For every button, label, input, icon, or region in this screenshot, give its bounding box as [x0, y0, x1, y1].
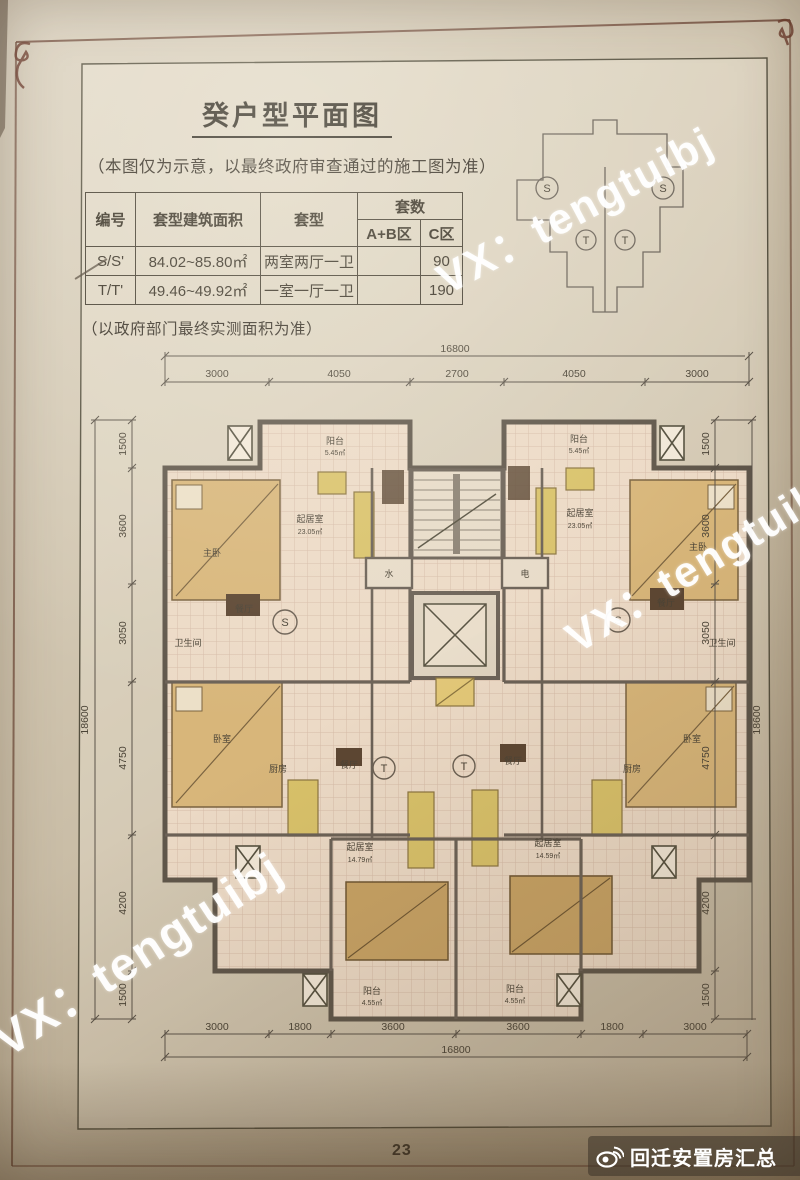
- dim: 4200: [117, 891, 129, 915]
- room-label-living: 起居室: [534, 837, 561, 848]
- room-label-living: 起居室: [566, 507, 593, 518]
- col-header-layout: 套型: [261, 193, 358, 247]
- unit-label-s: S: [281, 617, 288, 629]
- bed: [346, 882, 448, 960]
- room-label-bedroom: 卧室: [213, 733, 231, 744]
- dim: 4050: [562, 368, 586, 380]
- dim: 2700: [445, 368, 469, 380]
- unit-spec-table: 编号 套型建筑面积 套型 套数 A+B区 C区 S/S' 84.02~85.80…: [85, 192, 463, 305]
- dim: 1800: [600, 1021, 624, 1033]
- room-area: 4.55㎡: [505, 997, 526, 1005]
- electric-room-label: 电: [520, 568, 529, 579]
- dim: 4050: [327, 368, 351, 380]
- room-label-kitchen: 厨房: [269, 763, 287, 774]
- dim-left-total: 18600: [79, 705, 91, 734]
- col-header-area: 套型建筑面积: [136, 193, 261, 247]
- source-badge: 回迁安置房汇总: [588, 1136, 800, 1176]
- room-label-balcony: 阳台: [570, 433, 588, 444]
- cell-area: 49.46~49.92㎡: [136, 276, 261, 305]
- dim-top-total: 16800: [440, 343, 469, 355]
- dim: 3600: [381, 1021, 405, 1033]
- bed: [510, 876, 612, 954]
- bed: [626, 682, 736, 807]
- cell-id: T/T': [86, 276, 136, 305]
- measurement-note: （以政府部门最终实测面积为准）: [82, 317, 322, 339]
- room-label-bath: 卫生间: [174, 637, 201, 648]
- disclaimer-note: （本图仅为示意，以最终政府审查通过的施工图为准）: [88, 153, 496, 177]
- page-number: 23: [392, 1142, 412, 1160]
- dim: 1500: [700, 983, 712, 1007]
- room-area: 23.05㎡: [568, 522, 593, 530]
- dim: 3000: [205, 368, 229, 380]
- dim: 3050: [700, 621, 712, 645]
- room-label-bath: 卫生间: [708, 637, 735, 648]
- room-label-balcony: 阳台: [326, 435, 344, 446]
- dim: 3600: [506, 1021, 530, 1033]
- dim: 3000: [205, 1021, 229, 1033]
- dim: 3600: [117, 514, 129, 538]
- col-header-count: 套数: [358, 193, 463, 220]
- water-room-label: 水: [384, 568, 393, 579]
- cell-layout: 一室一厅一卫: [261, 276, 358, 305]
- weibo-icon: [596, 1144, 624, 1168]
- cell-count-ab: [358, 247, 421, 276]
- dim: 1800: [288, 1021, 312, 1033]
- room-label-master: 主卧: [203, 547, 221, 558]
- page-title: 癸户型平面图: [192, 94, 392, 138]
- room-area: 4.55㎡: [362, 999, 383, 1007]
- corner-flourish-icon: [778, 20, 792, 45]
- dim-bottom-total: 16800: [441, 1044, 470, 1056]
- room-area: 5.45㎡: [569, 447, 590, 455]
- cell-count-ab: [358, 276, 421, 305]
- unit-label-t: T: [461, 761, 468, 773]
- cell-layout: 两室两厅一卫: [261, 247, 358, 276]
- dim-right-total: 18600: [751, 705, 763, 734]
- room-label-balcony: 阳台: [363, 985, 381, 996]
- cell-id: S/S': [86, 247, 136, 276]
- dim: 1500: [700, 432, 712, 456]
- room-area: 5.45㎡: [325, 449, 346, 457]
- room-area: 14.59㎡: [536, 852, 561, 860]
- dim: 4200: [700, 891, 712, 915]
- col-header-count-ab: A+B区: [358, 220, 421, 247]
- room-label-bedroom: 卧室: [683, 733, 701, 744]
- bed: [172, 480, 280, 600]
- photographed-floorplan-page: 癸户型平面图 （本图仅为示意，以最终政府审查通过的施工图为准） 编号 套型建筑面…: [0, 0, 800, 1180]
- table-row: T/T' 49.46~49.92㎡ 一室一厅一卫 190: [86, 276, 463, 305]
- room-label-balcony: 阳台: [506, 983, 524, 994]
- cell-area: 84.02~85.80㎡: [136, 247, 261, 276]
- dim: 3000: [683, 1021, 707, 1033]
- room-label-dining: 餐厅: [340, 759, 358, 770]
- room-label-kitchen: 厨房: [623, 763, 641, 774]
- keyplan-unit-label: T: [622, 235, 629, 247]
- col-header-id: 编号: [86, 193, 136, 247]
- room-area: 23.05㎡: [298, 528, 323, 536]
- badge-label: 回迁安置房汇总: [630, 1142, 777, 1171]
- unit-label-t: T: [381, 763, 388, 775]
- dim: 3050: [117, 621, 129, 645]
- dim: 4750: [117, 746, 129, 770]
- room-label-dining: 餐厅: [504, 755, 522, 766]
- dim: 3000: [685, 368, 709, 380]
- corner-flourish-icon: [16, 43, 30, 88]
- staircase: [412, 470, 502, 558]
- room-label-living: 起居室: [296, 513, 323, 524]
- bed: [172, 682, 282, 807]
- room-label-living: 起居室: [346, 841, 373, 852]
- dim: 4750: [700, 746, 712, 770]
- room-area: 14.79㎡: [348, 856, 373, 864]
- table-row: S/S' 84.02~85.80㎡ 两室两厅一卫 90: [86, 247, 463, 276]
- dim: 1500: [117, 432, 129, 456]
- room-label-dining: 餐厅: [235, 603, 253, 614]
